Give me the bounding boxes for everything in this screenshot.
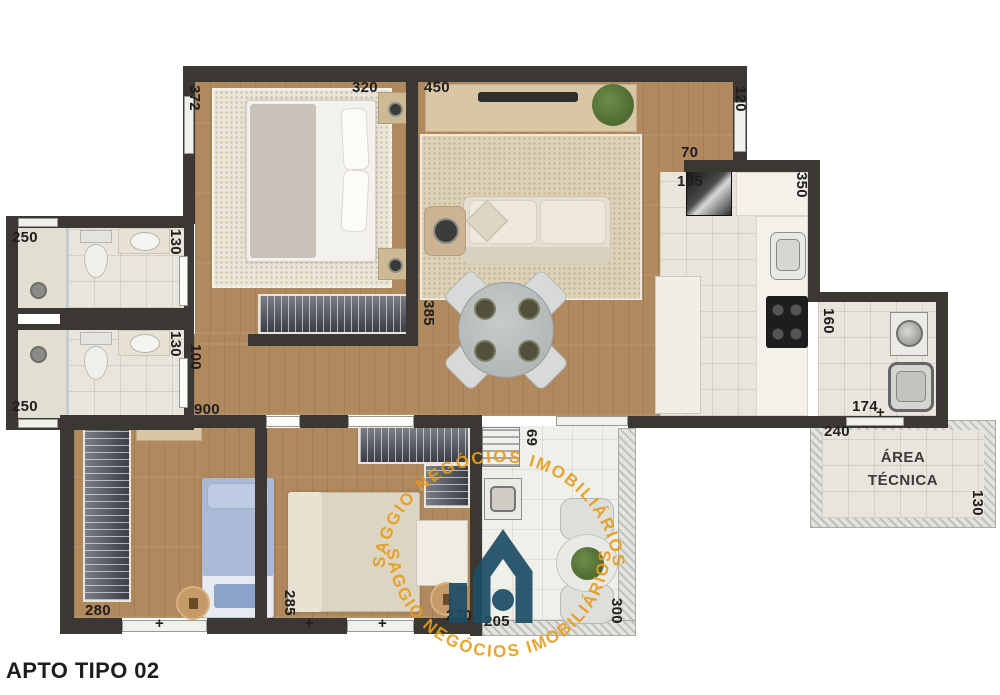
dimension-label-100: 100 bbox=[188, 344, 203, 370]
rug-ornament bbox=[443, 594, 452, 605]
window-bedroom-2 bbox=[122, 620, 207, 632]
place-setting bbox=[518, 340, 540, 362]
dimension-tick: + bbox=[876, 405, 885, 420]
plant bbox=[592, 84, 634, 126]
dimension-label-174: 174 bbox=[852, 399, 878, 414]
grill bbox=[482, 427, 520, 467]
bedroom-3-door bbox=[348, 416, 414, 427]
bathroom-sink bbox=[130, 334, 160, 353]
stove-cooktop bbox=[766, 296, 808, 348]
dimension-label-270: 270 bbox=[446, 608, 472, 623]
rug-ornament bbox=[189, 598, 198, 609]
dimension-label-205: 205 bbox=[484, 614, 510, 629]
dimension-label-130b: 130 bbox=[168, 331, 183, 357]
wall-bottom-b bbox=[207, 618, 347, 634]
wardrobe-bedroom-3 bbox=[358, 426, 470, 464]
wall-bedroom2-left bbox=[60, 415, 74, 634]
bathroom-door bbox=[179, 256, 188, 306]
wall-bed3-balcony-divider bbox=[470, 416, 482, 636]
duct-shaft bbox=[16, 312, 62, 326]
wardrobe-bedroom-3-ext bbox=[424, 464, 470, 508]
wall-laundry-right bbox=[936, 292, 948, 428]
wall-top bbox=[183, 66, 747, 82]
dimension-label-350: 350 bbox=[794, 172, 809, 198]
dimension-label-320: 320 bbox=[352, 80, 378, 95]
shower-head bbox=[30, 346, 47, 363]
lamp bbox=[388, 258, 403, 273]
bed-pillow bbox=[340, 107, 369, 170]
wardrobe-bedroom-1 bbox=[258, 294, 410, 334]
window-bath-1 bbox=[18, 218, 58, 227]
dimension-tick: + bbox=[155, 616, 164, 631]
wall-bedroom1-bottom bbox=[248, 334, 418, 346]
bathroom-sink bbox=[130, 232, 160, 251]
bed-blanket bbox=[250, 104, 316, 258]
shower-head bbox=[30, 282, 47, 299]
dimension-label-900: 900 bbox=[194, 402, 220, 417]
page-title: APTO TIPO 02 bbox=[6, 658, 160, 684]
wall-laundry-top bbox=[808, 292, 948, 302]
wall-corridor-bottom-b bbox=[300, 415, 348, 428]
wall-kitchen-top bbox=[684, 160, 820, 172]
dimension-label-372: 372 bbox=[187, 85, 202, 111]
dining-table bbox=[458, 282, 554, 378]
door-area-tecnica bbox=[846, 417, 904, 426]
place-setting bbox=[474, 340, 496, 362]
balcony-sink-basin bbox=[490, 486, 516, 512]
dimension-tick: + bbox=[378, 616, 387, 631]
dimension-label-285: 285 bbox=[282, 590, 297, 616]
wall-bottom-a bbox=[60, 618, 122, 634]
dimension-label-120: 120 bbox=[733, 86, 748, 112]
sofa-backrest bbox=[463, 247, 611, 264]
dimension-tick: + bbox=[305, 616, 314, 631]
bedroom-2-door bbox=[266, 416, 300, 427]
plant bbox=[571, 547, 604, 580]
dimension-label-240: 240 bbox=[824, 424, 850, 439]
toilet-tank bbox=[80, 332, 112, 345]
balcony-sliding-door bbox=[556, 416, 628, 426]
wall-bed2-bed3-divider bbox=[255, 428, 267, 618]
dimension-label-130a: 130 bbox=[168, 229, 183, 255]
dimension-label-250a: 250 bbox=[12, 230, 38, 245]
dimension-label-280: 280 bbox=[85, 603, 111, 618]
kitchen-island bbox=[655, 276, 701, 414]
lamp bbox=[388, 102, 403, 117]
toilet-tank bbox=[80, 230, 112, 243]
dimension-label-69: 69 bbox=[524, 429, 539, 446]
window-bath-2 bbox=[18, 419, 58, 428]
floor-corridor bbox=[194, 334, 418, 415]
wall-corridor-bottom-a bbox=[60, 415, 266, 428]
dimension-label-450: 450 bbox=[424, 80, 450, 95]
wardrobe-bedroom-2 bbox=[83, 428, 131, 602]
dimension-label-185: 185 bbox=[677, 174, 703, 189]
sofa-cushion bbox=[540, 200, 606, 244]
floor-plan: 372 320 450 120 70 185 350 160 174 240 2… bbox=[0, 0, 1000, 695]
dimension-label-70: 70 bbox=[681, 145, 698, 160]
washing-machine-drum bbox=[896, 320, 923, 347]
dimension-label-160: 160 bbox=[821, 308, 836, 334]
shower-glass-1 bbox=[66, 228, 69, 308]
dimension-label-250b: 250 bbox=[12, 399, 38, 414]
area-tecnica-line1: ÁREA bbox=[822, 446, 984, 469]
dimension-label-300: 300 bbox=[609, 598, 624, 624]
area-tecnica-line2: TÉCNICA bbox=[822, 469, 984, 492]
place-setting bbox=[518, 298, 540, 320]
shower-glass-2 bbox=[66, 330, 69, 418]
dimension-label-385: 385 bbox=[421, 300, 436, 326]
area-tecnica-label: ÁREA TÉCNICA bbox=[822, 446, 984, 493]
place-setting bbox=[474, 298, 496, 320]
dimension-label-130c: 130 bbox=[970, 490, 985, 516]
kitchen-sink-basin bbox=[776, 239, 800, 271]
side-table-top bbox=[433, 218, 459, 244]
laundry-tub-basin bbox=[896, 371, 926, 402]
desk bbox=[416, 520, 468, 586]
wall-bedroom1-right bbox=[406, 82, 418, 338]
tv bbox=[478, 92, 578, 102]
bed-pillow bbox=[340, 169, 369, 232]
